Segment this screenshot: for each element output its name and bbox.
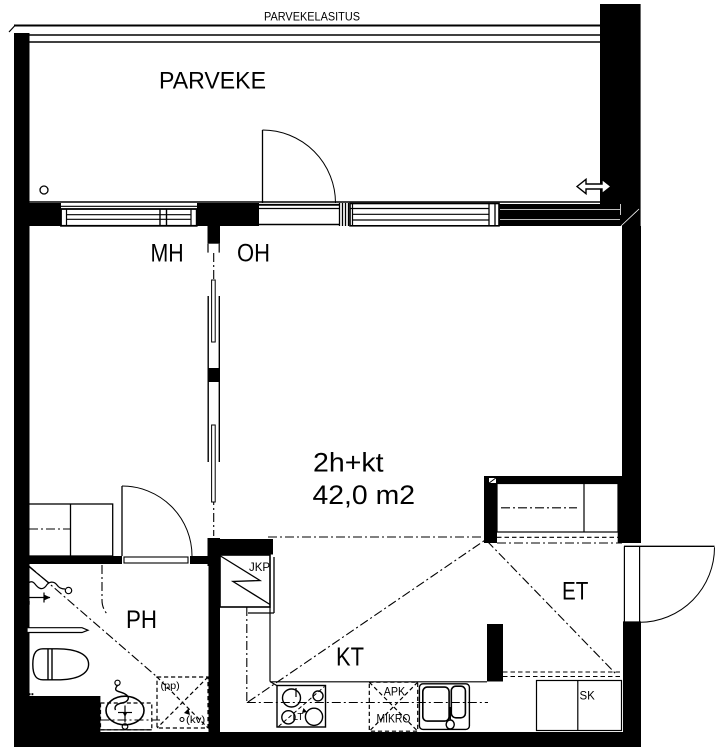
svg-text:ET: ET <box>562 578 588 606</box>
svg-text:KT: KT <box>336 642 364 672</box>
svg-text:APK: APK <box>384 687 406 699</box>
svg-text:PARVEKE: PARVEKE <box>159 68 266 95</box>
svg-text:42,0 m2: 42,0 m2 <box>313 480 416 510</box>
svg-text:JKP: JKP <box>249 562 270 574</box>
svg-text:(pp): (pp) <box>161 680 180 692</box>
svg-text:PARVEKELASITUS: PARVEKELASITUS <box>264 12 360 24</box>
svg-text:OH: OH <box>237 239 270 267</box>
svg-text:MH: MH <box>151 239 184 267</box>
svg-text:MIKRO: MIKRO <box>377 713 411 725</box>
svg-text:2h+kt: 2h+kt <box>313 448 384 478</box>
svg-text:LT: LT <box>293 712 304 723</box>
svg-text:(kv): (kv) <box>186 714 205 726</box>
svg-text:SK: SK <box>580 691 596 703</box>
svg-text:PH: PH <box>126 606 157 634</box>
